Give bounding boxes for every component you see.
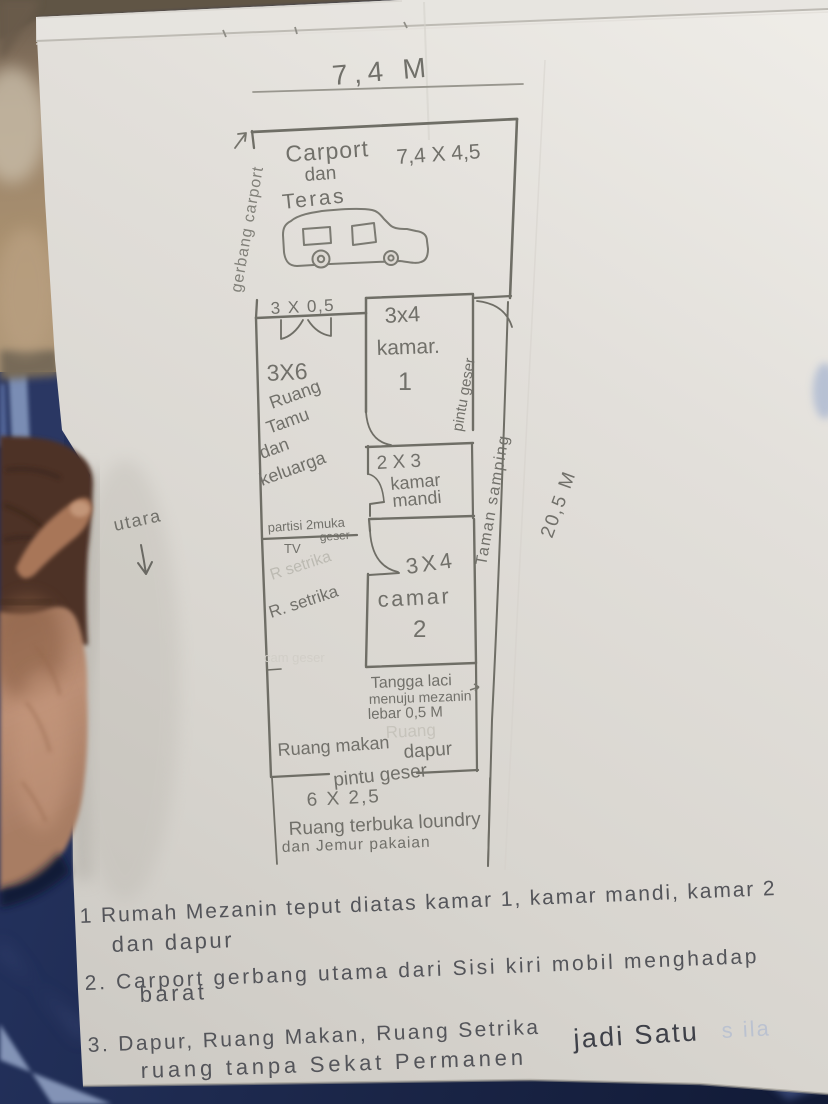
svg-text:dan dapur: dan dapur <box>111 927 234 957</box>
svg-text:s ila: s ila <box>721 1015 771 1043</box>
svg-text:Ruang: Ruang <box>385 720 436 742</box>
svg-text:kamar.: kamar. <box>376 335 440 360</box>
svg-text:barat: barat <box>139 979 208 1007</box>
svg-text:geser: geser <box>319 528 350 544</box>
svg-text:TV: TV <box>284 541 301 556</box>
svg-text:camar: camar <box>377 583 452 612</box>
svg-text:dapur: dapur <box>403 739 454 763</box>
svg-text:dan: dan <box>304 163 337 186</box>
svg-text:6 X 2,5: 6 X 2,5 <box>306 786 381 811</box>
svg-text:mandi: mandi <box>392 487 443 511</box>
svg-text:2 X 3: 2 X 3 <box>376 451 421 474</box>
svg-text:3 X 0,5: 3 X 0,5 <box>270 296 335 318</box>
svg-text:cam geser: cam geser <box>264 650 325 665</box>
svg-text:2: 2 <box>413 616 426 643</box>
svg-text:3x4: 3x4 <box>384 301 421 328</box>
svg-text:1: 1 <box>398 368 412 396</box>
